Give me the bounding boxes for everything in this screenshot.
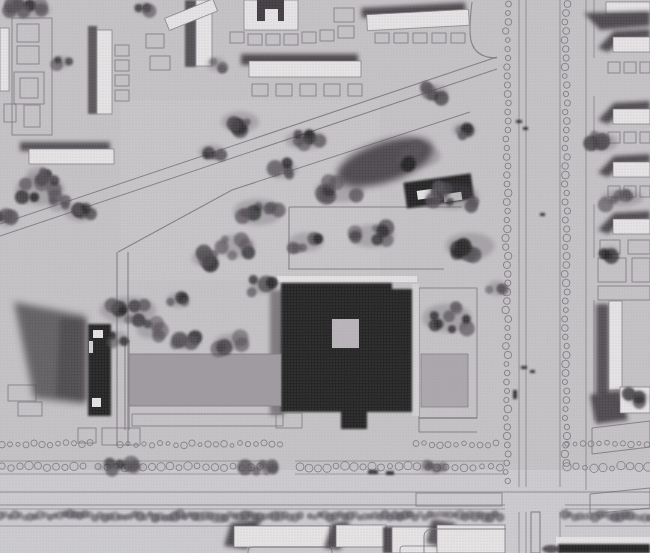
film-grain-overlay	[0, 0, 650, 553]
site-model-photo	[0, 0, 650, 553]
aerial-photo-canvas	[0, 0, 650, 553]
